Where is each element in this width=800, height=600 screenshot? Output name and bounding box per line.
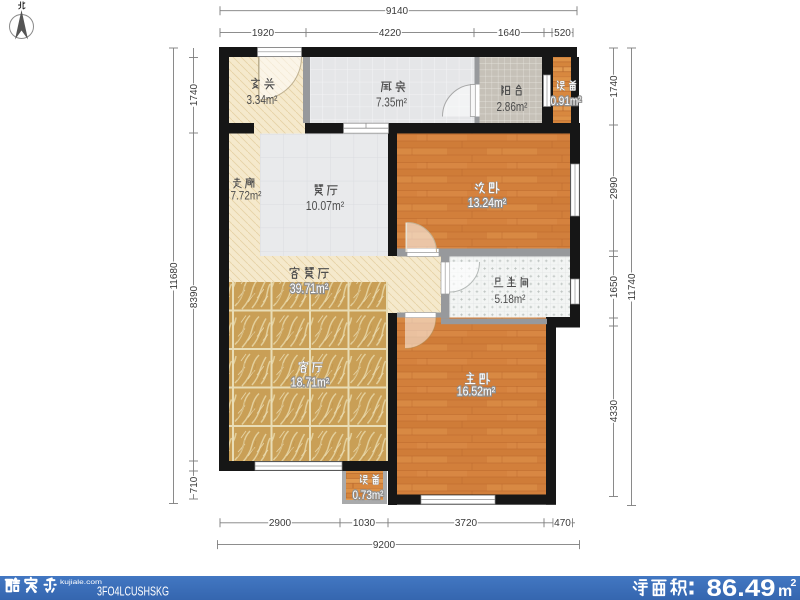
svg-text:7.35m²: 7.35m² <box>376 95 408 110</box>
svg-text:9200: 9200 <box>373 540 396 551</box>
svg-text:0.73m²: 0.73m² <box>353 488 384 502</box>
svg-text:86.49: 86.49 <box>707 575 776 600</box>
svg-text:16.52m²: 16.52m² <box>457 384 496 399</box>
svg-text:710: 710 <box>189 476 200 493</box>
svg-text:520: 520 <box>554 28 571 39</box>
svg-text:13.24m²: 13.24m² <box>468 195 507 210</box>
svg-text:39.71m²: 39.71m² <box>290 281 329 296</box>
svg-text:4220: 4220 <box>379 28 402 39</box>
svg-text:10.07m²: 10.07m² <box>306 198 345 213</box>
svg-text:4330: 4330 <box>609 399 620 422</box>
svg-text:11680: 11680 <box>169 262 180 290</box>
svg-text:8390: 8390 <box>189 285 200 308</box>
svg-text:3FO4LCUSHSKG: 3FO4LCUSHSKG <box>97 585 169 599</box>
svg-text:5.18m²: 5.18m² <box>495 292 526 306</box>
svg-text:1650: 1650 <box>609 275 620 298</box>
svg-text:18.71m²: 18.71m² <box>291 375 330 390</box>
svg-text:3720: 3720 <box>455 518 478 529</box>
svg-text:kujiale.com: kujiale.com <box>60 579 102 586</box>
svg-text:7.72m²: 7.72m² <box>231 189 262 203</box>
svg-text:1740: 1740 <box>609 75 620 98</box>
svg-text:1030: 1030 <box>353 518 376 529</box>
svg-text:0.91m²: 0.91m² <box>551 94 582 108</box>
svg-text:2: 2 <box>791 577 797 589</box>
svg-text:11740: 11740 <box>627 273 638 301</box>
svg-text:470: 470 <box>554 518 571 529</box>
svg-text:1920: 1920 <box>252 28 275 39</box>
svg-text:2900: 2900 <box>269 518 292 529</box>
svg-text:1640: 1640 <box>498 28 521 39</box>
svg-text:2990: 2990 <box>609 176 620 199</box>
svg-text:1740: 1740 <box>189 83 200 106</box>
svg-text:3.34m²: 3.34m² <box>247 92 279 107</box>
svg-text:9140: 9140 <box>386 6 409 17</box>
svg-text:2.86m²: 2.86m² <box>497 100 528 114</box>
